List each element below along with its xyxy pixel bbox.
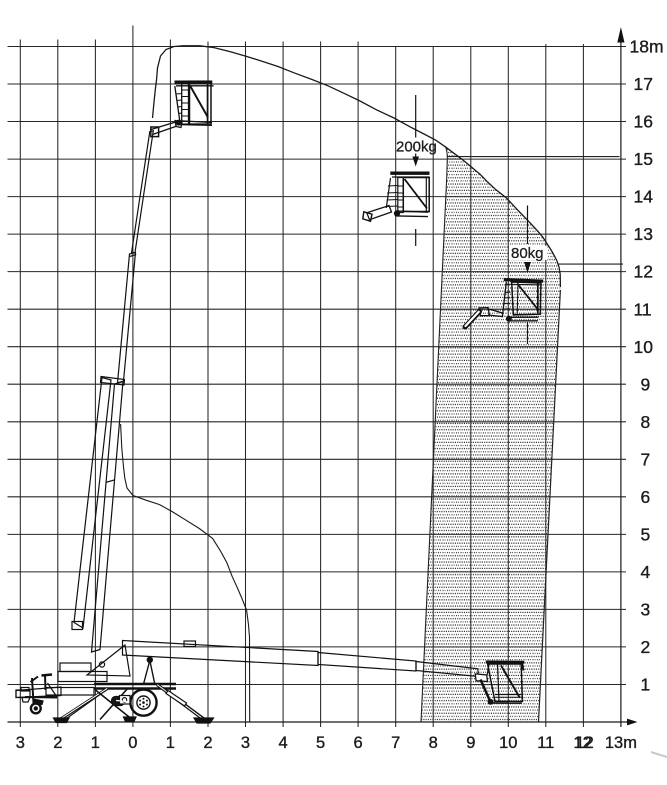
svg-text:13m: 13m [605,734,637,752]
svg-text:16: 16 [634,112,653,132]
svg-text:6: 6 [641,487,651,507]
svg-text:2: 2 [53,734,62,752]
svg-text:13: 13 [634,224,653,244]
svg-text:11: 11 [537,734,554,752]
svg-text:1: 1 [91,734,100,752]
svg-text:4: 4 [641,562,651,582]
svg-text:5: 5 [316,734,325,752]
svg-text:1: 1 [641,675,651,695]
svg-text:200kg: 200kg [396,138,437,155]
svg-text:7: 7 [391,734,400,752]
svg-text:2: 2 [641,637,651,657]
svg-text:80kg: 80kg [511,245,544,262]
svg-text:5: 5 [641,525,651,545]
svg-text:10: 10 [499,734,517,752]
svg-text:8: 8 [641,412,651,432]
svg-text:12: 12 [634,262,653,282]
svg-text:18m: 18m [630,37,664,57]
svg-text:9: 9 [641,374,651,394]
svg-text:2: 2 [203,734,212,752]
svg-text:6: 6 [354,734,363,752]
svg-text:8: 8 [429,734,438,752]
svg-text:17: 17 [634,74,653,94]
svg-text:3: 3 [16,734,25,752]
svg-text:3: 3 [641,600,651,620]
svg-text:15: 15 [634,149,653,169]
svg-text:11: 11 [634,299,652,319]
svg-text:14: 14 [634,187,654,207]
svg-text:9: 9 [466,734,475,752]
svg-text:4: 4 [279,734,288,752]
svg-text:7: 7 [641,449,651,469]
svg-text:10: 10 [634,337,654,357]
svg-text:12: 12 [575,734,593,752]
svg-text:1: 1 [166,734,175,752]
svg-text:3: 3 [241,734,250,752]
svg-text:0: 0 [128,734,137,752]
